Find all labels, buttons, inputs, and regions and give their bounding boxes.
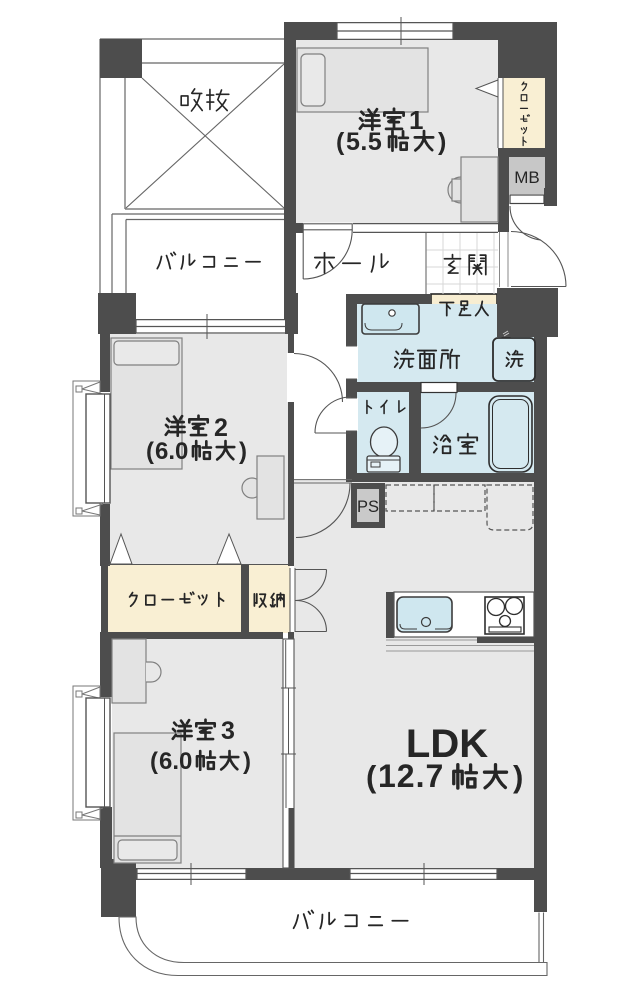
svg-text:2: 2 [214, 414, 228, 442]
svg-text:): ) [239, 438, 247, 465]
svg-text:): ) [438, 128, 446, 156]
svg-text:1: 1 [409, 105, 423, 135]
svg-text:): ) [243, 748, 251, 775]
svg-text:(: ( [366, 759, 377, 794]
svg-text:6.0: 6.0 [159, 748, 192, 775]
svg-text:): ) [513, 759, 523, 794]
svg-text:MB: MB [514, 168, 540, 187]
svg-text:(: ( [150, 748, 158, 775]
svg-text:3: 3 [221, 717, 235, 745]
svg-text:12.7: 12.7 [378, 758, 444, 794]
svg-text:PS: PS [357, 498, 379, 516]
svg-text:5.5: 5.5 [346, 128, 382, 156]
svg-text:(: ( [336, 128, 345, 156]
svg-text:(: ( [146, 438, 154, 465]
svg-text:6.0: 6.0 [155, 438, 188, 465]
